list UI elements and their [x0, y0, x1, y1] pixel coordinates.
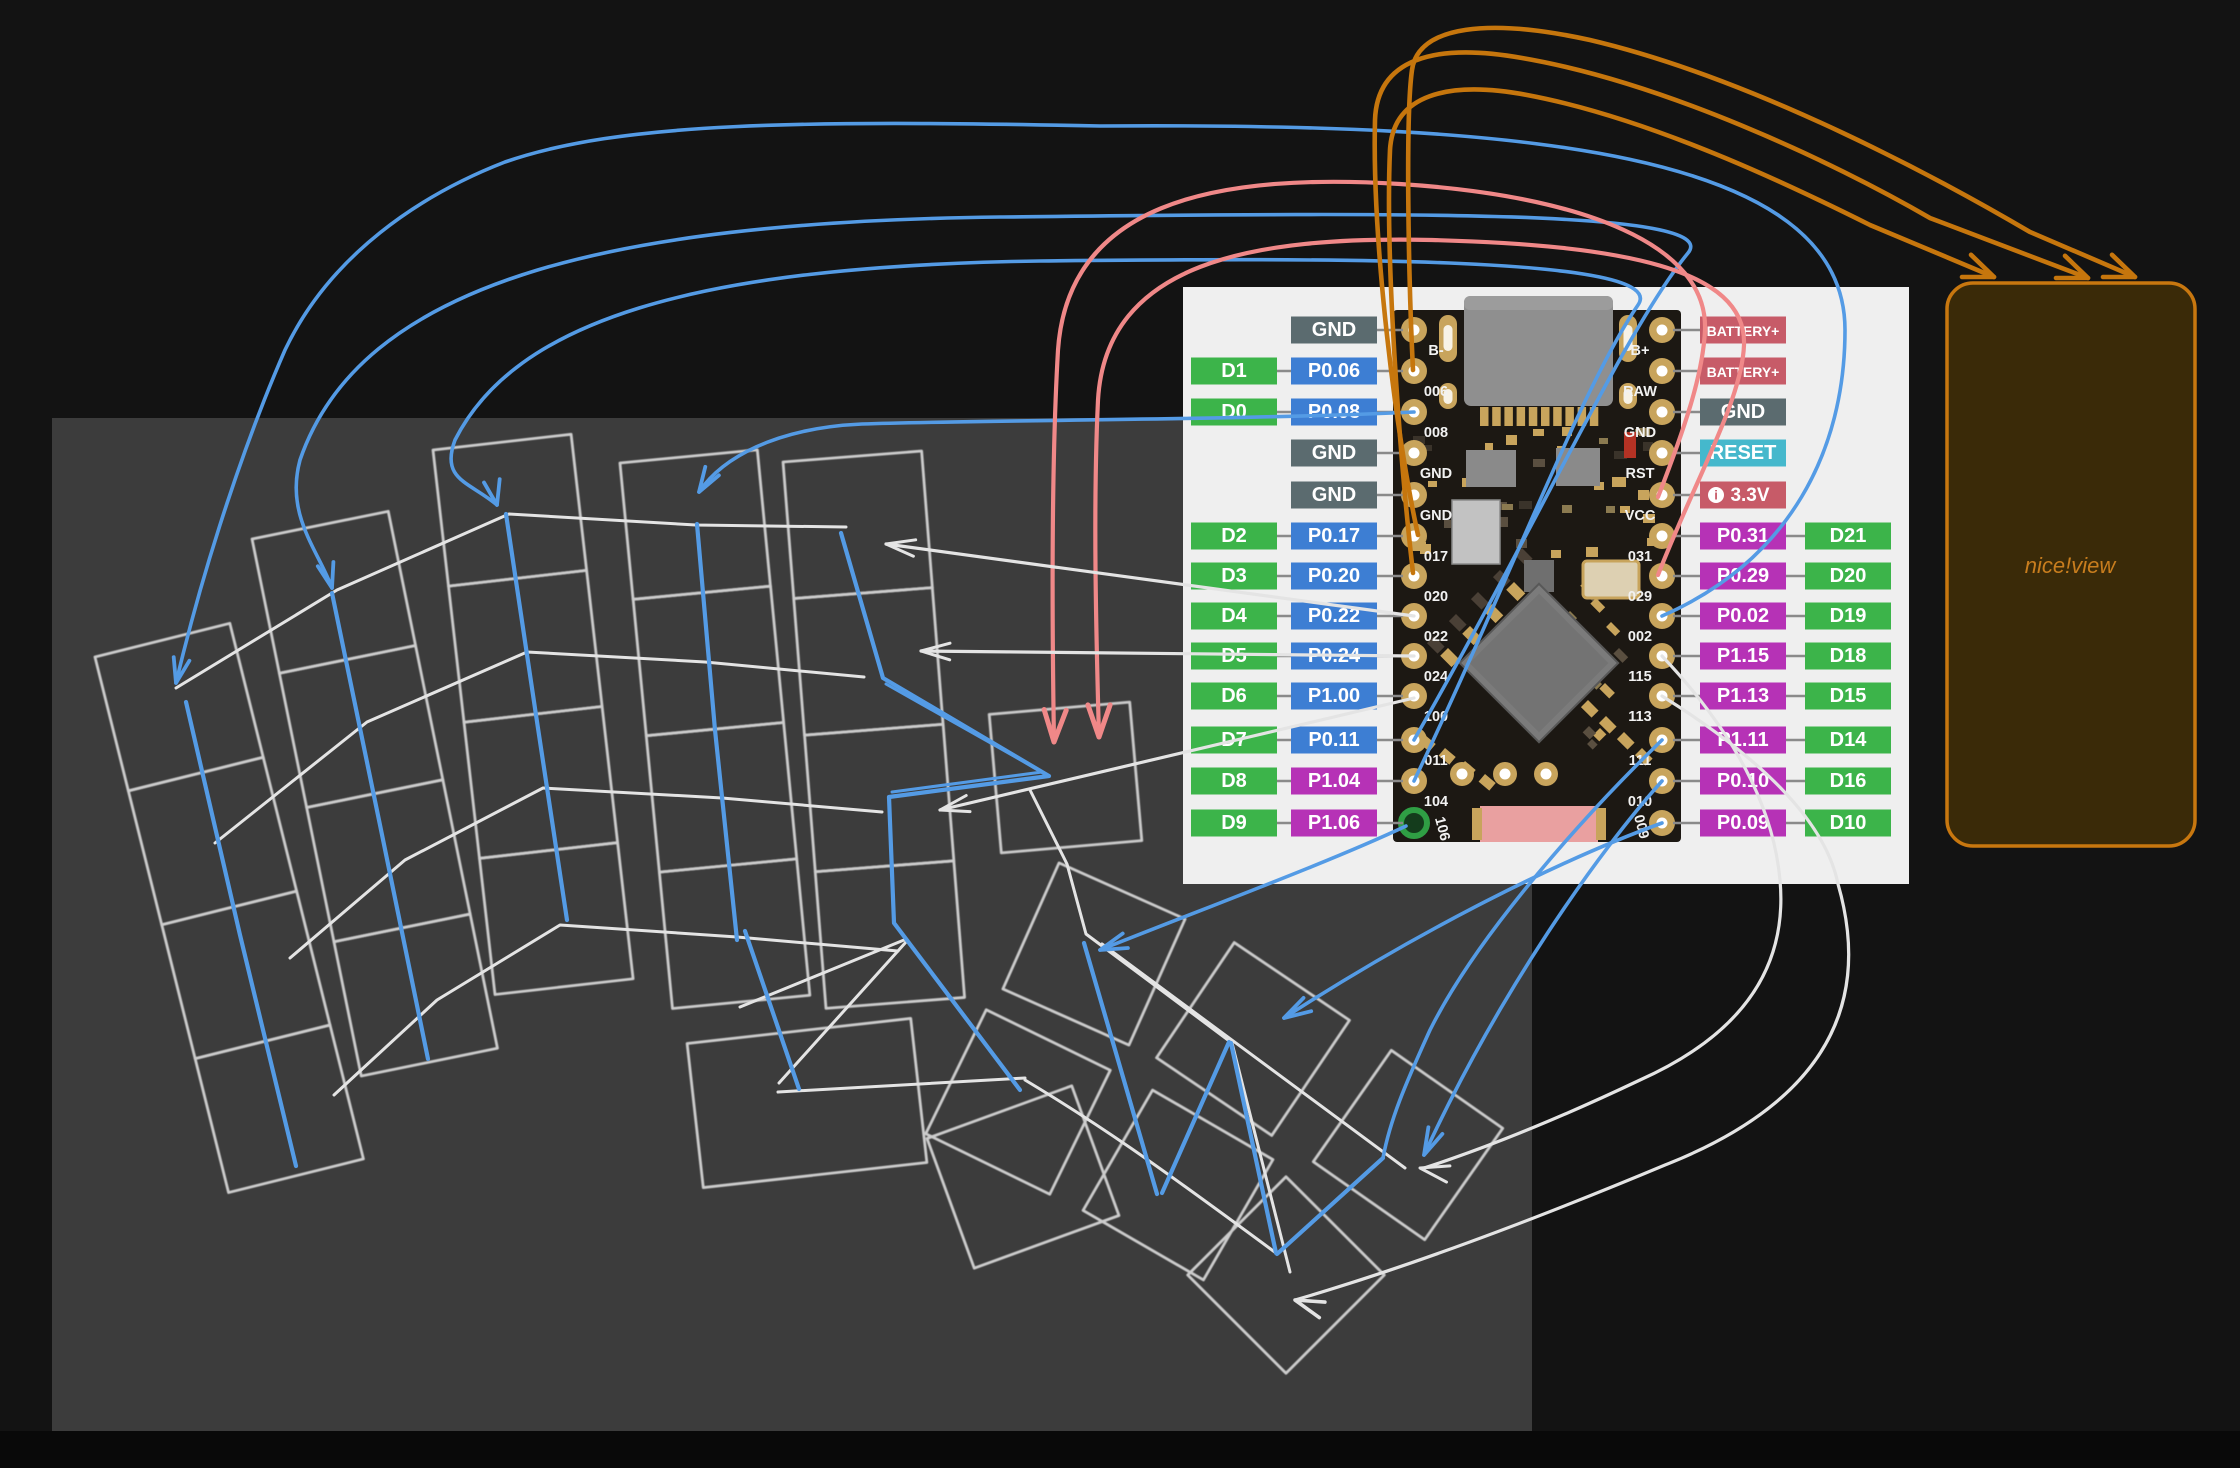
svg-text:D20: D20 [1830, 565, 1867, 587]
svg-text:GND: GND [1312, 319, 1356, 341]
svg-text:GND: GND [1624, 425, 1656, 441]
svg-text:P0.08: P0.08 [1308, 401, 1360, 423]
svg-text:RESET: RESET [1710, 442, 1777, 464]
svg-text:006: 006 [1424, 384, 1448, 400]
svg-text:nice!view: nice!view [2025, 553, 2118, 578]
svg-text:GND: GND [1420, 466, 1452, 482]
svg-text:029: 029 [1628, 589, 1652, 605]
svg-text:B+: B+ [1631, 343, 1650, 359]
svg-text:D0: D0 [1221, 401, 1247, 423]
svg-text:D2: D2 [1221, 525, 1247, 547]
svg-text:P0.06: P0.06 [1308, 360, 1360, 382]
svg-text:008: 008 [1424, 425, 1448, 441]
svg-text:i: i [1714, 488, 1718, 503]
svg-text:RAW: RAW [1623, 384, 1657, 400]
svg-text:P1.15: P1.15 [1717, 645, 1769, 667]
svg-text:D19: D19 [1830, 605, 1867, 627]
svg-text:RST: RST [1626, 466, 1655, 482]
svg-text:P0.02: P0.02 [1717, 605, 1769, 627]
svg-text:D18: D18 [1830, 645, 1867, 667]
svg-text:104: 104 [1424, 794, 1448, 810]
svg-text:3.3V: 3.3V [1730, 485, 1769, 506]
svg-text:VCC: VCC [1625, 508, 1656, 524]
svg-text:P0.17: P0.17 [1308, 525, 1360, 547]
svg-text:P1.00: P1.00 [1308, 685, 1360, 707]
svg-text:D8: D8 [1221, 770, 1247, 792]
svg-text:002: 002 [1628, 629, 1652, 645]
svg-text:020: 020 [1424, 589, 1448, 605]
svg-text:D6: D6 [1221, 685, 1247, 707]
svg-text:D3: D3 [1221, 565, 1247, 587]
svg-text:D4: D4 [1221, 605, 1247, 627]
svg-text:017: 017 [1424, 549, 1448, 565]
svg-text:D10: D10 [1830, 812, 1867, 834]
svg-text:P1.04: P1.04 [1308, 770, 1361, 792]
svg-text:115: 115 [1628, 669, 1651, 685]
svg-text:D16: D16 [1830, 770, 1867, 792]
svg-text:P1.06: P1.06 [1308, 812, 1360, 834]
svg-text:P1.13: P1.13 [1717, 685, 1769, 707]
svg-text:GND: GND [1312, 484, 1356, 506]
svg-text:P0.10: P0.10 [1717, 770, 1769, 792]
svg-text:D15: D15 [1830, 685, 1867, 707]
svg-text:D1: D1 [1221, 360, 1247, 382]
svg-text:113: 113 [1628, 709, 1651, 725]
svg-text:GND: GND [1420, 508, 1452, 524]
svg-text:D21: D21 [1830, 525, 1867, 547]
svg-text:P0.31: P0.31 [1717, 525, 1769, 547]
svg-text:P0.11: P0.11 [1308, 729, 1359, 751]
svg-text:022: 022 [1424, 629, 1448, 645]
svg-text:D5: D5 [1221, 645, 1247, 667]
svg-text:P0.20: P0.20 [1308, 565, 1360, 587]
svg-text:P0.09: P0.09 [1717, 812, 1769, 834]
svg-text:GND: GND [1312, 442, 1356, 464]
svg-text:D14: D14 [1830, 729, 1868, 751]
svg-text:B-: B- [1428, 343, 1443, 359]
svg-text:031: 031 [1628, 549, 1652, 565]
svg-text:D9: D9 [1221, 812, 1247, 834]
